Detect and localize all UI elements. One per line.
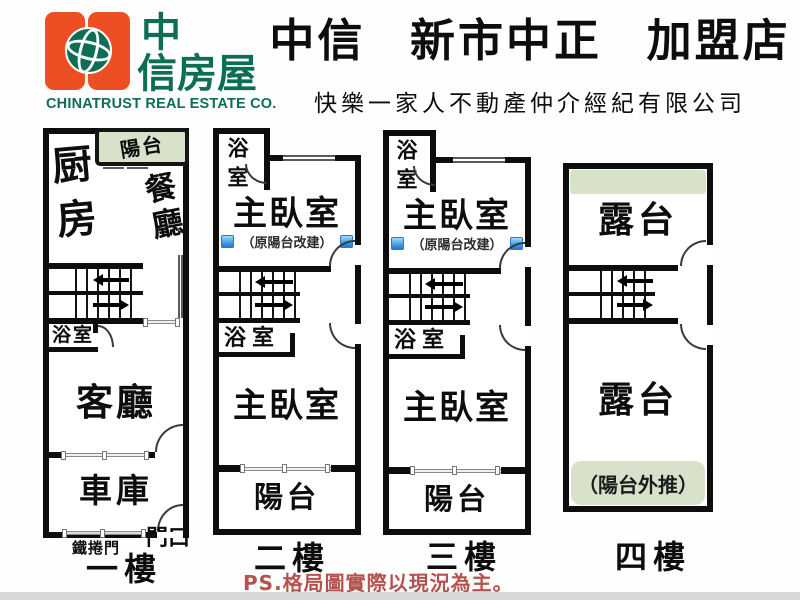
room-label-garage: 車庫 (49, 474, 183, 507)
wall-segment (49, 291, 143, 295)
stair-arrow-right (617, 299, 653, 311)
room-label-bathroom: 浴室 (52, 326, 94, 345)
wall-segment (389, 467, 412, 474)
opening-cap (100, 529, 105, 538)
room-label-master-bedroom: 主臥室 (219, 197, 355, 231)
opening-cap (62, 529, 67, 538)
stair-arrow-left (617, 275, 653, 287)
room-label-bathroom: 浴室 (394, 330, 450, 352)
wall-segment (219, 318, 300, 323)
brand-name-cn-top: 中 (141, 13, 181, 53)
conversion-note: （原陽台改建） (241, 232, 332, 251)
blue-marker-icon (391, 237, 404, 250)
wall-segment (389, 294, 470, 298)
store-title: 中信 新市中正 加盟店 (262, 16, 798, 66)
opening-cap (282, 464, 287, 473)
wall-segment (569, 292, 655, 296)
wall-segment (389, 320, 470, 325)
store-subtitle: 快樂一家人不動產仲介經紀有限公司 (262, 84, 798, 118)
room-label-kitchen: 厨房 (46, 142, 95, 253)
conversion-note: （原陽台改建） (411, 234, 502, 253)
opening-cap (452, 466, 457, 475)
floor-plan-4: 露台 露台 （陽台外推） (563, 163, 713, 512)
door-gap (525, 326, 531, 346)
opening-cap (144, 451, 149, 460)
opening-cap (61, 451, 66, 460)
opening-cap (175, 318, 180, 327)
floor-plan-1: 陽台 厨房 餐廳 浴室 客廳 車庫 (43, 128, 189, 538)
floorplan-flyer: 中 信房屋 CHINATRUST REAL ESTATE CO. 中信 新市中正… (0, 0, 800, 600)
stair-arrow-left (255, 276, 293, 288)
stair-arrow-right (255, 299, 293, 311)
room-label-dining: 餐廳 (138, 170, 182, 247)
window (453, 157, 505, 163)
stair-arrow-left (425, 278, 463, 290)
wall-segment (501, 467, 525, 474)
parapet-strip (570, 170, 706, 194)
brand-name-en: CHINATRUST REAL ESTATE CO. (46, 96, 277, 112)
wall-segment (219, 465, 242, 472)
wall-segment (389, 354, 465, 359)
brand-logo (45, 10, 135, 94)
door-gap (707, 245, 713, 265)
stair-arrow-right (93, 299, 129, 311)
floor-plan-3: 浴室 主臥室 （原陽台改建） 浴室 主臥室 陽台 (383, 157, 531, 535)
floor-plan-2: 浴室 主臥室 （原陽台改建） 浴室 主臥室 陽台 (213, 155, 361, 535)
door-arc (155, 424, 183, 452)
balcony-room: 陽台 (95, 128, 189, 166)
room-label-master-bedroom: 主臥室 (389, 199, 525, 233)
opening-cap (495, 466, 500, 475)
room-label-terrace: 露台 (569, 203, 707, 239)
stair-arrow-left (93, 274, 129, 286)
door-arc (499, 325, 525, 351)
wall-segment (331, 465, 355, 472)
door-gap (157, 532, 183, 538)
brand-name-cn-bottom: 信房屋 (137, 54, 257, 94)
room-label-master-bedroom: 主臥室 (219, 389, 355, 423)
blue-marker-icon (221, 235, 234, 248)
room-label-bathroom: 浴室 (224, 328, 280, 350)
room-label-master-bedroom: 主臥室 (389, 391, 525, 425)
opening-cap (240, 464, 245, 473)
door-arc (329, 323, 355, 349)
door-arc (98, 325, 114, 347)
window (283, 155, 335, 161)
opening-cap (410, 466, 415, 475)
floor-label-1: 一樓 (86, 553, 162, 585)
floor-label-4: 四樓 (615, 541, 691, 573)
door-arc (680, 240, 706, 266)
conversion-note-row: （原陽台改建） (219, 233, 355, 249)
room-label-living: 客廳 (49, 384, 183, 421)
room-label-balcony: 陽台 (219, 483, 355, 512)
opening-cap (141, 529, 146, 538)
door-gap (707, 325, 713, 345)
opening-cap (102, 451, 107, 460)
room-label-balcony: 陽台 (119, 134, 166, 161)
wall-segment (219, 352, 295, 357)
wall-segment (49, 347, 98, 352)
wall-segment (569, 318, 678, 324)
window (178, 255, 183, 318)
globe-icon (65, 27, 112, 74)
room-label-balcony: 陽台 (389, 485, 525, 514)
bottom-border-strip (0, 592, 800, 600)
door-gap (355, 324, 361, 344)
door-gap (525, 247, 531, 267)
opening-cap (325, 464, 330, 473)
door-arc (680, 324, 706, 350)
opening-cap (143, 318, 148, 327)
conversion-note-row: （原陽台改建） (389, 235, 525, 251)
pushed-out-note: （陽台外推） (571, 461, 705, 505)
wall-segment (219, 292, 300, 296)
opening-rail (146, 320, 177, 324)
room-label-terrace: 露台 (569, 383, 707, 419)
room-label-bathroom: 浴室 (226, 137, 247, 195)
stair-arrow-right (425, 301, 463, 313)
door-gap (355, 245, 361, 265)
